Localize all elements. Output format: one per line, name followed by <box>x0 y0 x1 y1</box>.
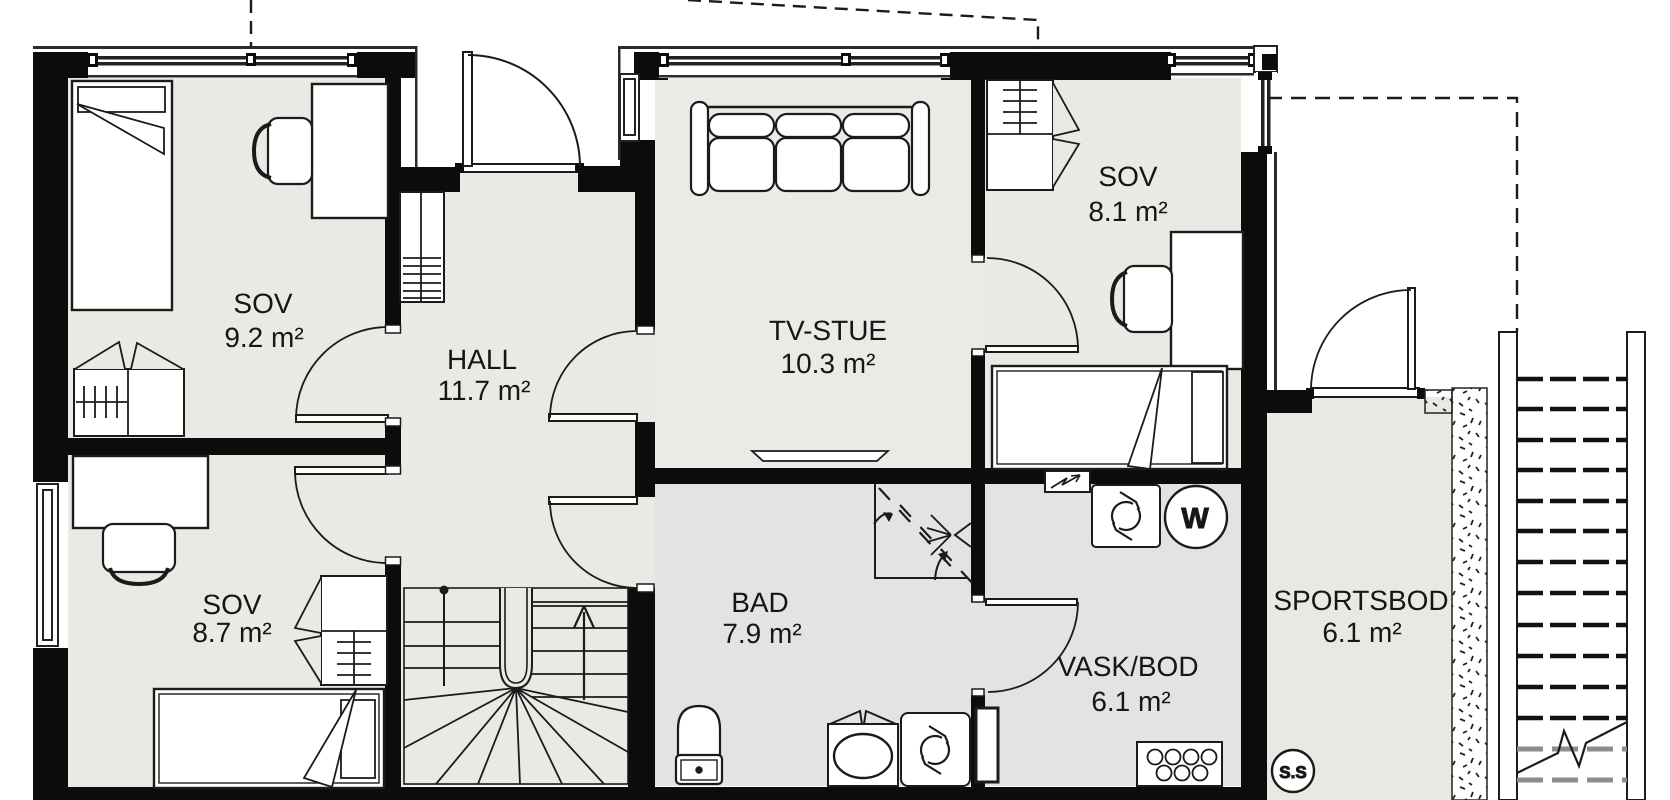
svg-text:SOV: SOV <box>233 288 292 319</box>
svg-text:6.1 m²: 6.1 m² <box>1322 617 1401 648</box>
svg-text:S.S: S.S <box>1279 763 1306 782</box>
svg-text:W: W <box>1181 503 1209 535</box>
svg-text:BAD: BAD <box>731 587 789 618</box>
svg-text:9.2 m²: 9.2 m² <box>224 322 303 353</box>
svg-text:VASK/BOD: VASK/BOD <box>1057 651 1198 682</box>
svg-text:10.3 m²: 10.3 m² <box>781 348 876 379</box>
svg-text:SPORTSBOD: SPORTSBOD <box>1273 585 1448 616</box>
svg-text:8.1 m²: 8.1 m² <box>1088 196 1167 227</box>
svg-text:TV-STUE: TV-STUE <box>769 315 887 346</box>
svg-text:SOV: SOV <box>1098 161 1157 192</box>
svg-text:11.7 m²: 11.7 m² <box>438 375 531 406</box>
svg-text:6.1 m²: 6.1 m² <box>1091 686 1170 717</box>
svg-text:SOV: SOV <box>202 589 261 620</box>
svg-text:7.9 m²: 7.9 m² <box>722 618 801 649</box>
svg-text:8.7 m²: 8.7 m² <box>192 617 271 648</box>
svg-text:HALL: HALL <box>447 344 517 375</box>
